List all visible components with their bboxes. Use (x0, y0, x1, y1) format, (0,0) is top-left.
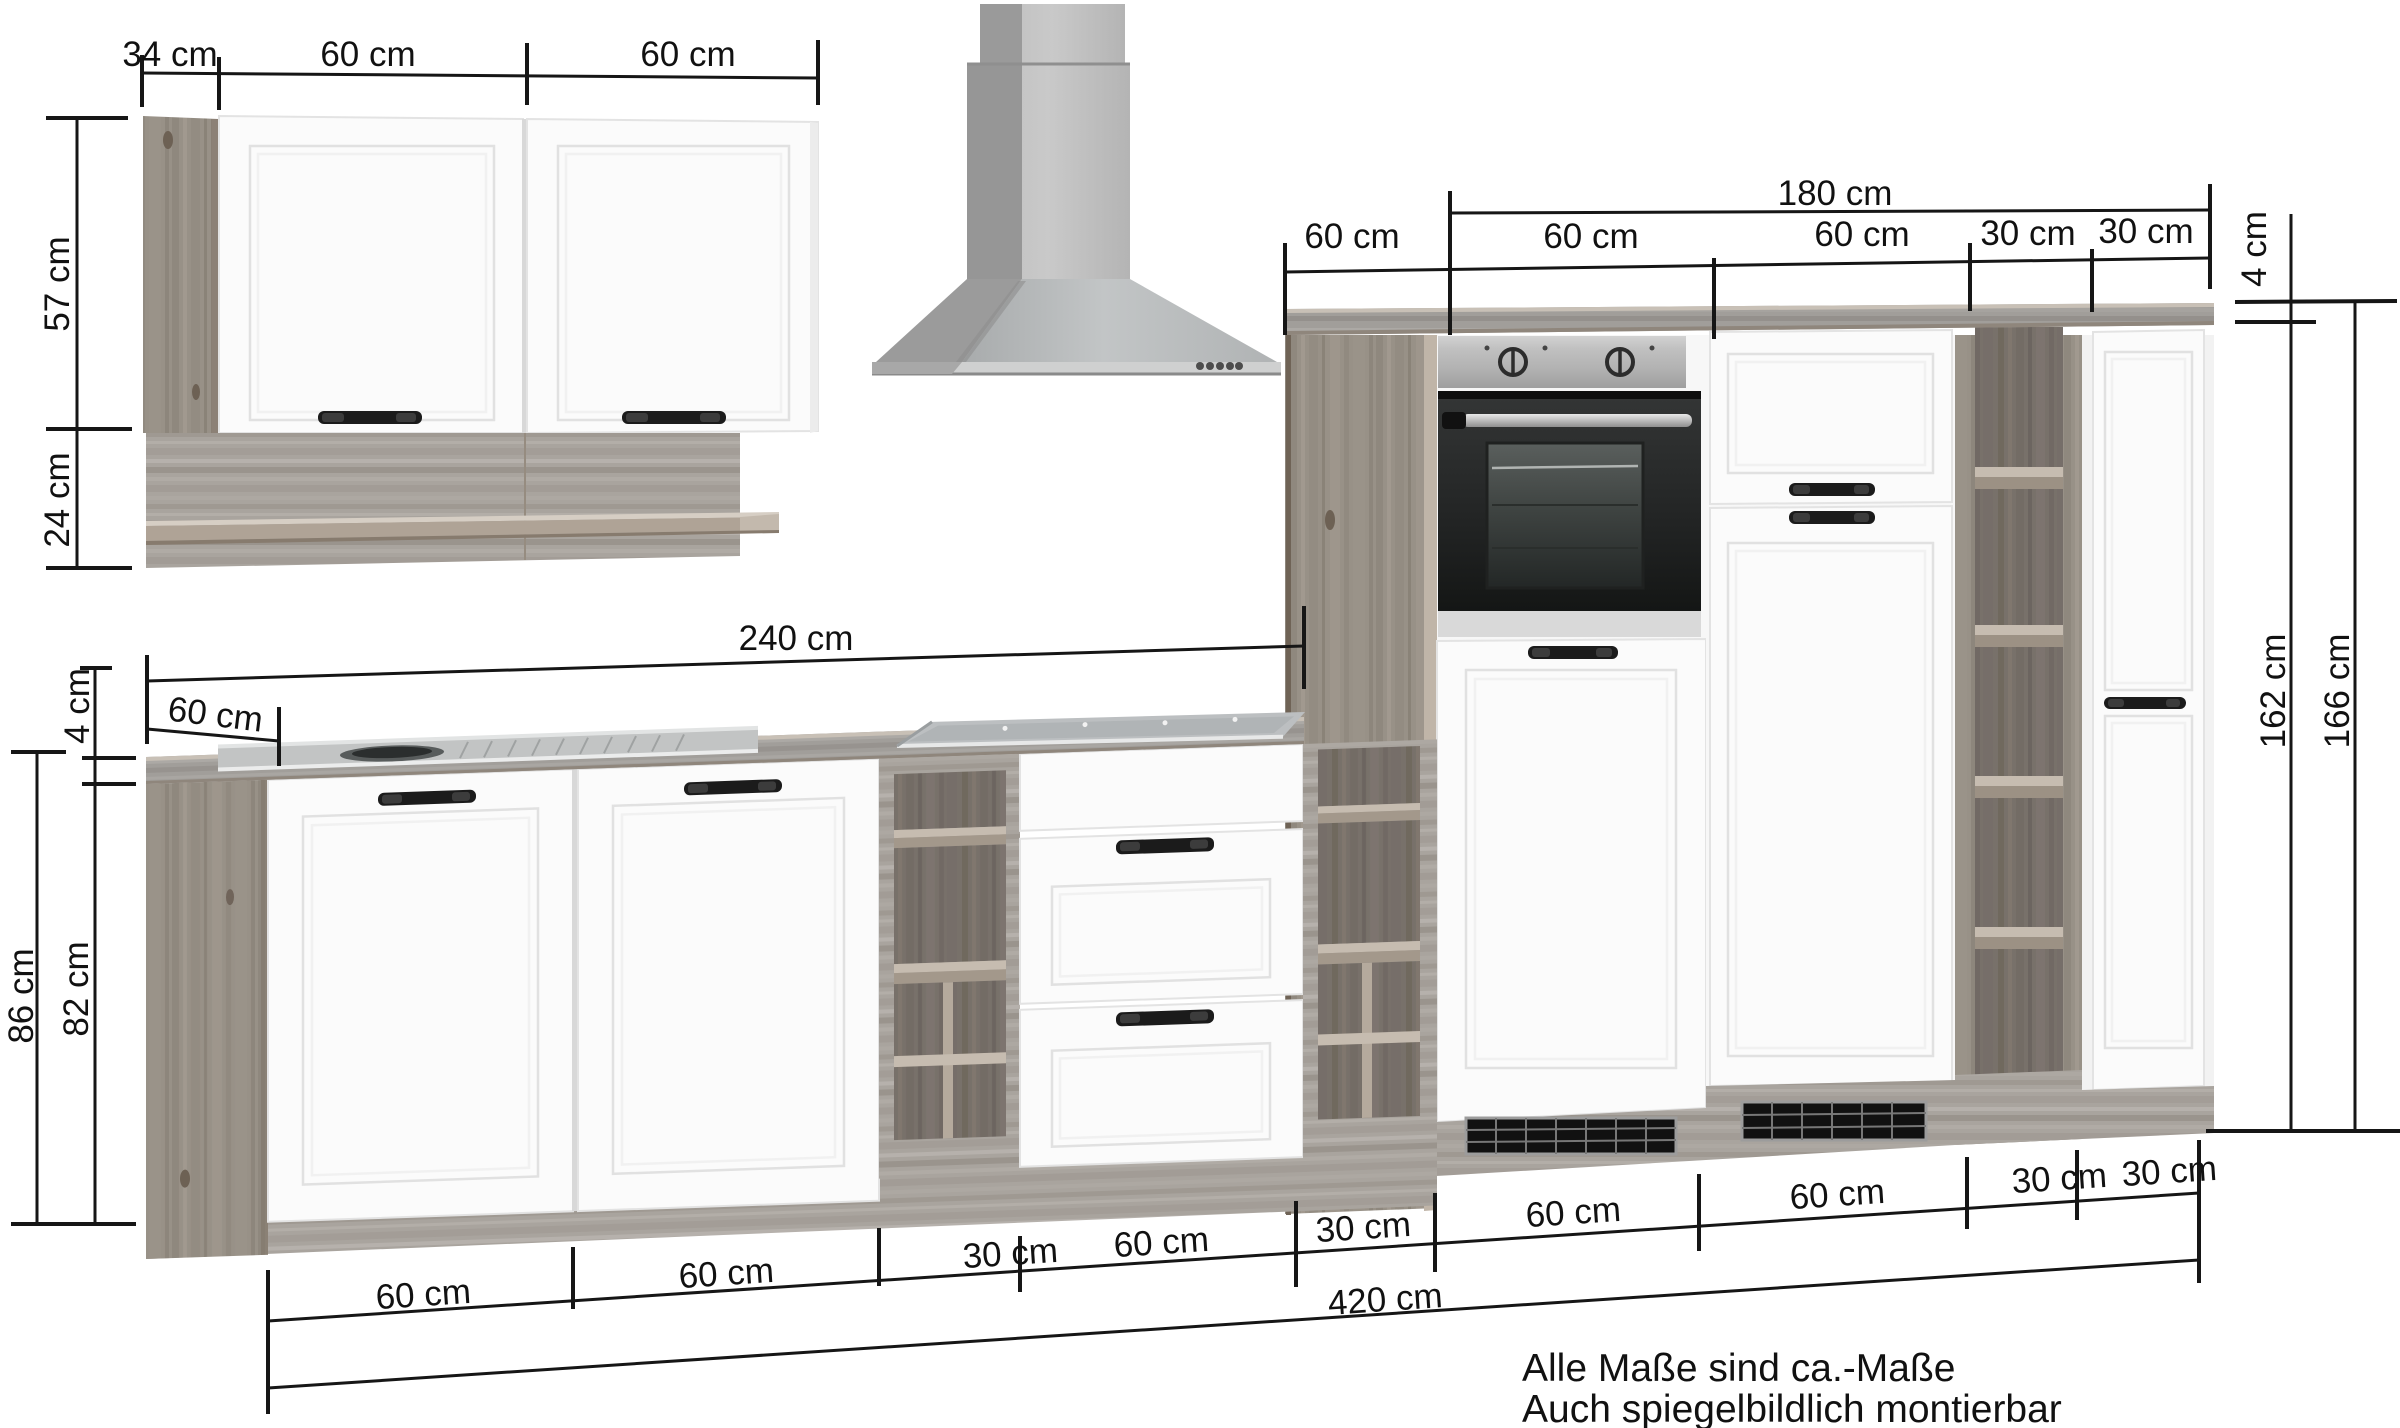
svg-text:Auch spiegelbildlich montierba: Auch spiegelbildlich montierbar (1522, 1388, 2062, 1428)
svg-text:60 cm: 60 cm (640, 35, 735, 74)
svg-text:30 cm: 30 cm (961, 1231, 1059, 1276)
svg-text:420 cm: 420 cm (1327, 1276, 1444, 1323)
svg-text:162 cm: 162 cm (2254, 634, 2293, 749)
svg-text:60 cm: 60 cm (1543, 217, 1638, 256)
svg-text:240 cm: 240 cm (739, 619, 854, 658)
svg-text:Alle Maße sind ca.-Maße: Alle Maße sind ca.-Maße (1522, 1347, 1955, 1390)
svg-text:60 cm: 60 cm (1814, 215, 1909, 254)
svg-text:166 cm: 166 cm (2318, 634, 2357, 749)
svg-text:180 cm: 180 cm (1778, 174, 1893, 213)
svg-text:60 cm: 60 cm (1788, 1172, 1886, 1217)
svg-text:82 cm: 82 cm (57, 941, 96, 1036)
svg-text:60 cm: 60 cm (1112, 1220, 1210, 1265)
svg-text:34 cm: 34 cm (122, 35, 217, 74)
svg-text:60 cm: 60 cm (1524, 1190, 1622, 1235)
svg-text:57 cm: 57 cm (38, 236, 77, 331)
svg-text:30 cm: 30 cm (1980, 214, 2075, 253)
svg-text:60 cm: 60 cm (1304, 217, 1399, 256)
svg-text:30 cm: 30 cm (2010, 1156, 2108, 1201)
svg-text:30 cm: 30 cm (2120, 1149, 2218, 1194)
svg-text:60 cm: 60 cm (374, 1272, 472, 1317)
svg-text:24 cm: 24 cm (38, 452, 77, 547)
svg-text:60 cm: 60 cm (677, 1251, 775, 1296)
svg-text:4 cm: 4 cm (2235, 211, 2274, 287)
svg-text:30 cm: 30 cm (2098, 212, 2193, 251)
svg-text:60 cm: 60 cm (320, 35, 415, 74)
svg-text:4 cm: 4 cm (58, 668, 97, 744)
svg-text:86 cm: 86 cm (2, 948, 41, 1043)
svg-text:30 cm: 30 cm (1314, 1205, 1412, 1250)
